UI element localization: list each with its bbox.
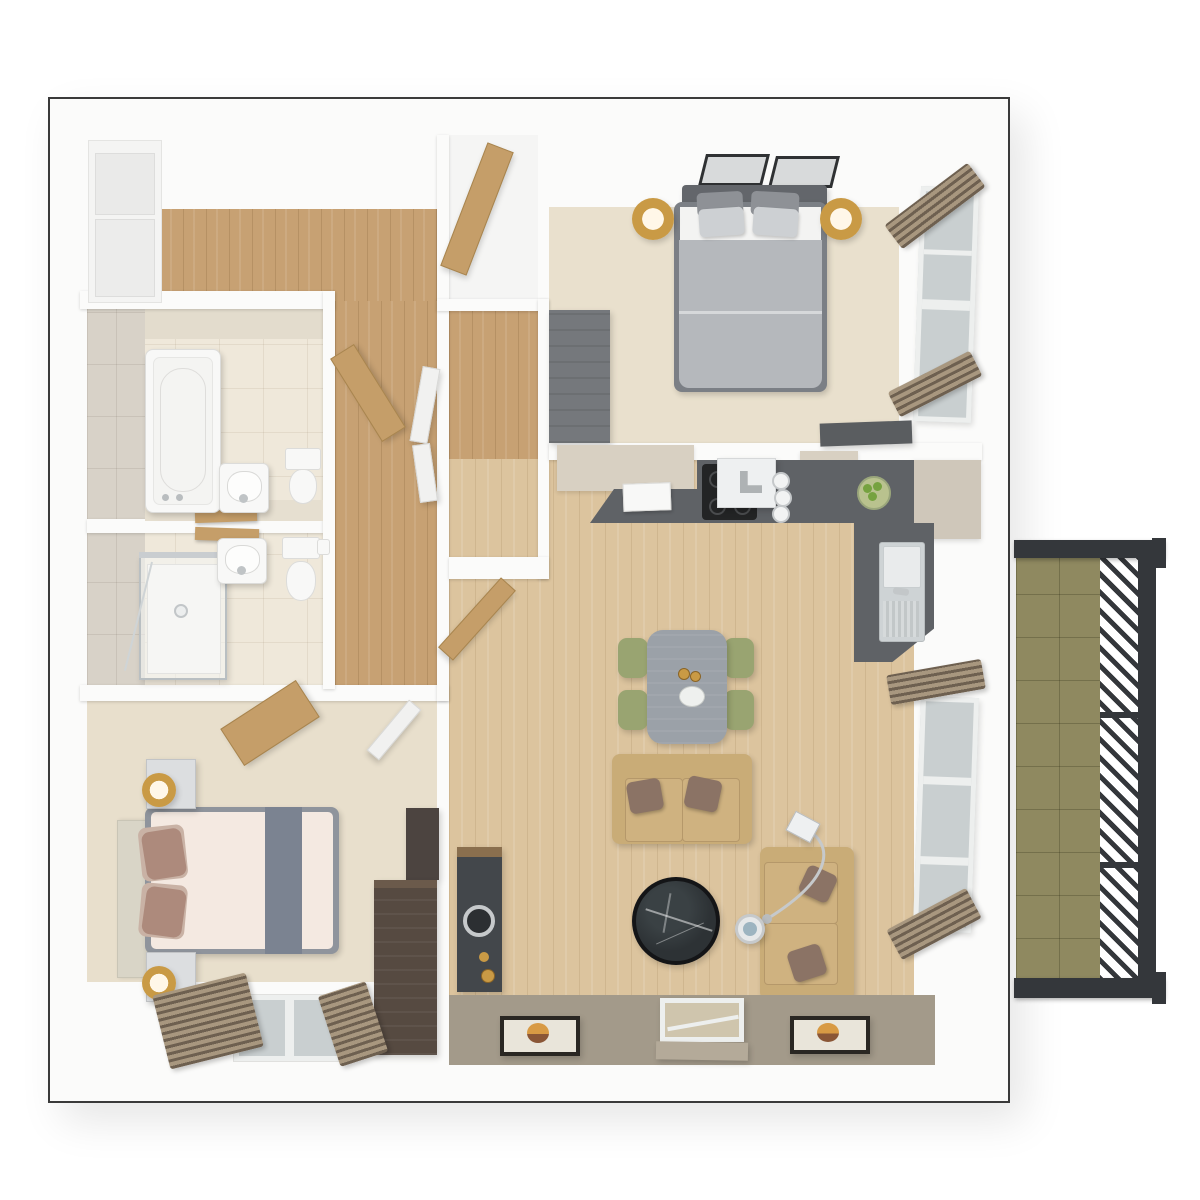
bed1-pillow-front xyxy=(752,206,799,237)
screen-divider xyxy=(1100,712,1142,718)
side-table xyxy=(735,914,765,944)
small-appliance xyxy=(623,482,672,512)
hall-closet xyxy=(88,140,162,303)
bathroom-basin xyxy=(219,463,269,513)
toilet-roll xyxy=(317,539,330,555)
bathroom-wall-tiles xyxy=(87,309,145,521)
pot xyxy=(772,472,790,490)
bed1-duvet xyxy=(679,240,822,388)
marble-vein xyxy=(645,908,712,932)
bed2-runner xyxy=(265,807,302,954)
fruit xyxy=(868,492,877,501)
bed2-pillow xyxy=(141,885,187,938)
toilet-cistern xyxy=(282,537,320,559)
wall-bedroom2-top xyxy=(80,685,449,701)
side-table-plate xyxy=(743,922,757,936)
coffee-cup xyxy=(690,671,701,682)
shower-room-basin xyxy=(217,538,267,584)
fruit-bowl xyxy=(857,476,891,510)
bedroom2-lamp-top xyxy=(142,773,176,807)
sink-basin xyxy=(883,546,921,588)
sofa-pillow xyxy=(625,777,664,814)
shower-rail xyxy=(139,552,227,558)
bedroom2-cabinet xyxy=(406,808,439,880)
window-mullion xyxy=(920,856,968,866)
pot xyxy=(772,505,790,523)
tv-unit xyxy=(457,847,502,992)
bed2-pillow xyxy=(140,827,187,881)
wall-inner-closet-right xyxy=(538,299,549,579)
sofa-horizontal xyxy=(612,754,752,844)
roof-window-left xyxy=(698,154,770,186)
duvet-fold xyxy=(679,311,822,314)
tv-unit-top-edge xyxy=(457,847,502,857)
flower-plate xyxy=(679,686,705,707)
coffee-table-marble xyxy=(636,881,716,961)
sofa-pillow xyxy=(683,775,723,813)
dining-chair xyxy=(618,690,648,730)
coffee-table-base xyxy=(632,877,720,965)
dresser-top-edge xyxy=(374,880,437,888)
roof-window-right xyxy=(768,156,840,188)
bedroom1-desk xyxy=(820,420,913,446)
wall-inner-closet-top xyxy=(437,299,549,311)
dresser-grain xyxy=(549,310,610,443)
window-mullion xyxy=(924,249,972,256)
balcony-frame-right-post xyxy=(1138,540,1156,998)
gold-accessory xyxy=(479,952,489,962)
bedroom1-bed xyxy=(674,202,827,392)
bathroom-top-tiles xyxy=(145,309,323,339)
balcony xyxy=(1012,538,1168,1014)
wall-picture-right xyxy=(790,1016,870,1054)
closet-sliding-panel xyxy=(95,153,155,215)
toilet-bowl xyxy=(289,469,317,504)
wall-inner-closet-bottom xyxy=(449,557,549,579)
balcony-corner-cap xyxy=(1152,972,1166,1004)
fruit xyxy=(873,482,882,491)
bedroom2-dresser xyxy=(374,880,437,1055)
balcony-privacy-screen xyxy=(1100,556,1142,982)
dining-chair xyxy=(724,638,754,678)
bathtub-basin xyxy=(160,368,206,492)
bedroom1-lamp-right xyxy=(820,198,862,240)
toilet-bowl xyxy=(286,561,316,601)
shower-room-wall-tiles xyxy=(87,533,145,687)
hood-vent xyxy=(740,471,762,493)
basin-tap xyxy=(237,566,246,575)
speaker-ring xyxy=(463,905,495,937)
picture-motif xyxy=(527,1023,549,1043)
bedroom1-dresser xyxy=(549,310,610,443)
bathtub xyxy=(145,349,221,513)
entrance-door xyxy=(660,998,744,1042)
window-mullion xyxy=(923,776,971,786)
wall-corridor-right xyxy=(437,135,449,701)
bathroom-toilet xyxy=(285,448,319,504)
wall-picture-left xyxy=(500,1016,580,1056)
bathtub-tap xyxy=(162,494,169,501)
dining-chair xyxy=(724,690,754,730)
apartment-outline xyxy=(48,97,1010,1103)
marble-vein xyxy=(663,893,672,933)
floor-plan-render xyxy=(0,0,1200,1200)
basin-tap xyxy=(239,494,248,503)
gold-accessory xyxy=(481,969,495,983)
bathtub-tap xyxy=(176,494,183,501)
shower-enclosure xyxy=(139,556,227,680)
screen-divider xyxy=(1100,862,1142,868)
dresser-grain xyxy=(374,888,437,1055)
dining-chair xyxy=(618,638,648,678)
extractor-hood xyxy=(717,458,776,508)
picture-motif xyxy=(817,1023,839,1042)
bedroom1-lamp-left xyxy=(632,198,674,240)
coffee-cup xyxy=(678,668,690,680)
closet-sliding-panel xyxy=(95,219,155,297)
hall-floor xyxy=(160,209,439,301)
bedroom2-bed xyxy=(145,807,339,954)
sink-tap xyxy=(893,587,910,596)
dining-table xyxy=(647,630,727,744)
wall-bathroom-right xyxy=(323,291,335,689)
shower-drain xyxy=(174,604,188,618)
shower-tray xyxy=(147,564,221,674)
window-mullion xyxy=(922,299,970,311)
sink-drainer xyxy=(883,601,919,637)
kitchen-sink xyxy=(879,542,925,642)
bed1-pillow-front xyxy=(698,206,745,237)
entrance-door-flap xyxy=(656,1041,748,1061)
toilet-cistern xyxy=(285,448,321,470)
shower-room-toilet xyxy=(282,537,320,599)
balcony-floor xyxy=(1016,556,1102,982)
door-glazing-bar xyxy=(667,1015,739,1031)
balcony-corner-cap xyxy=(1152,538,1166,568)
